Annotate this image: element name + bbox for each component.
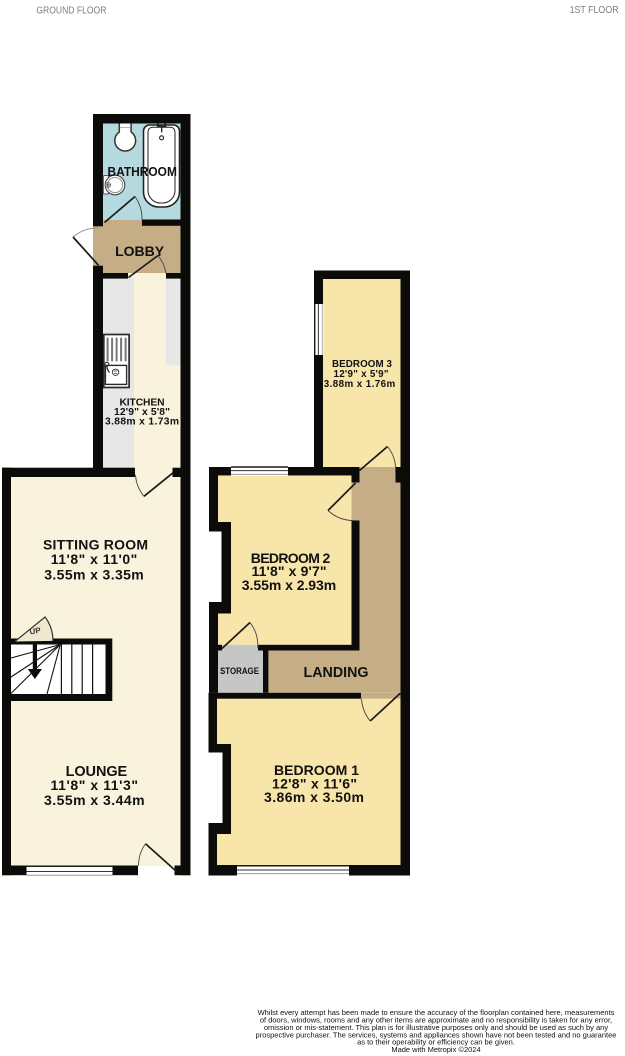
- svg-text:1ST FLOOR: 1ST FLOOR: [570, 5, 619, 16]
- svg-text:GROUND FLOOR: GROUND FLOOR: [36, 6, 106, 17]
- svg-text:3.55m x 3.44m: 3.55m x 3.44m: [44, 792, 145, 808]
- svg-text:11'8" x 11'3": 11'8" x 11'3": [51, 777, 139, 793]
- svg-text:3.55m x 3.35m: 3.55m x 3.35m: [44, 567, 144, 583]
- svg-text:3.55m x 2.93m: 3.55m x 2.93m: [242, 577, 337, 593]
- svg-text:LOBBY: LOBBY: [115, 243, 165, 259]
- svg-text:LANDING: LANDING: [304, 665, 369, 681]
- svg-text:STORAGE: STORAGE: [220, 666, 259, 676]
- svg-text:UP: UP: [29, 626, 42, 637]
- svg-text:3.88m x 1.73m: 3.88m x 1.73m: [105, 417, 179, 428]
- svg-text:11'8" x 11'0": 11'8" x 11'0": [51, 551, 138, 567]
- svg-text:Made with Metropix ©2024: Made with Metropix ©2024: [391, 1045, 480, 1054]
- svg-text:3.88m x 1.76m: 3.88m x 1.76m: [324, 379, 396, 390]
- svg-text:3.86m x 3.50m: 3.86m x 3.50m: [264, 789, 364, 805]
- svg-text:BATHROOM: BATHROOM: [108, 164, 177, 179]
